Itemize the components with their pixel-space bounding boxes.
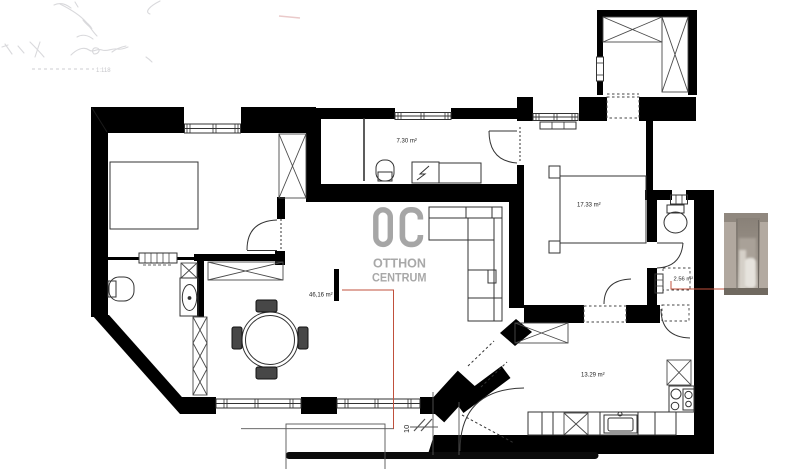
svg-text:CENTRUM: CENTRUM — [372, 271, 427, 285]
svg-text:10: 10 — [402, 425, 411, 433]
svg-text:17.33 m²: 17.33 m² — [577, 203, 601, 209]
svg-text:7.30 m²: 7.30 m² — [397, 139, 417, 145]
svg-text:OTTHON: OTTHON — [373, 257, 426, 271]
svg-text:2.56 m²: 2.56 m² — [674, 277, 694, 283]
svg-text:13.29 m²: 13.29 m² — [581, 373, 605, 379]
svg-text:46,16 m²: 46,16 m² — [309, 293, 333, 299]
svg-text:1:118: 1:118 — [96, 68, 111, 74]
